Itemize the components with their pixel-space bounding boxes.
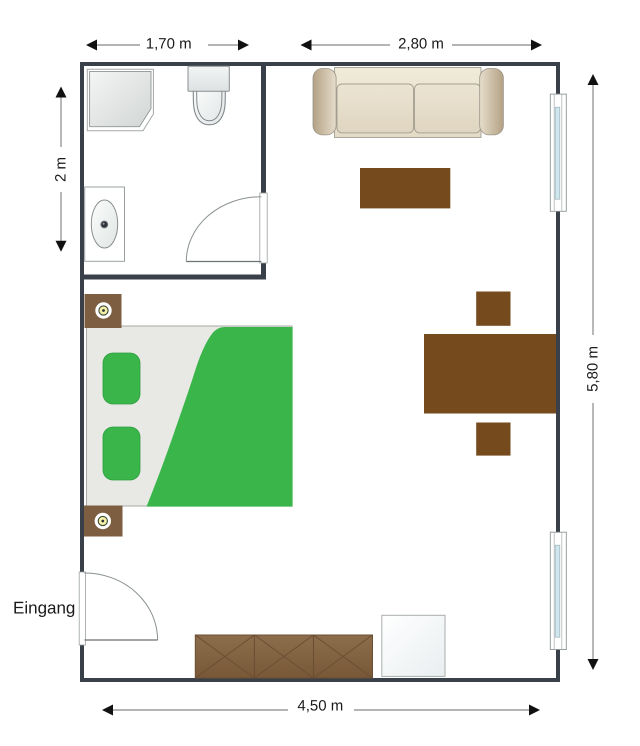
svg-text:Eingang: Eingang bbox=[13, 599, 75, 618]
svg-text:1,70 m: 1,70 m bbox=[146, 36, 192, 53]
svg-text:5,80 m: 5,80 m bbox=[585, 346, 602, 392]
svg-text:2,80 m: 2,80 m bbox=[398, 36, 444, 53]
svg-text:2 m: 2 m bbox=[53, 157, 70, 182]
svg-text:4,50 m: 4,50 m bbox=[297, 698, 343, 715]
